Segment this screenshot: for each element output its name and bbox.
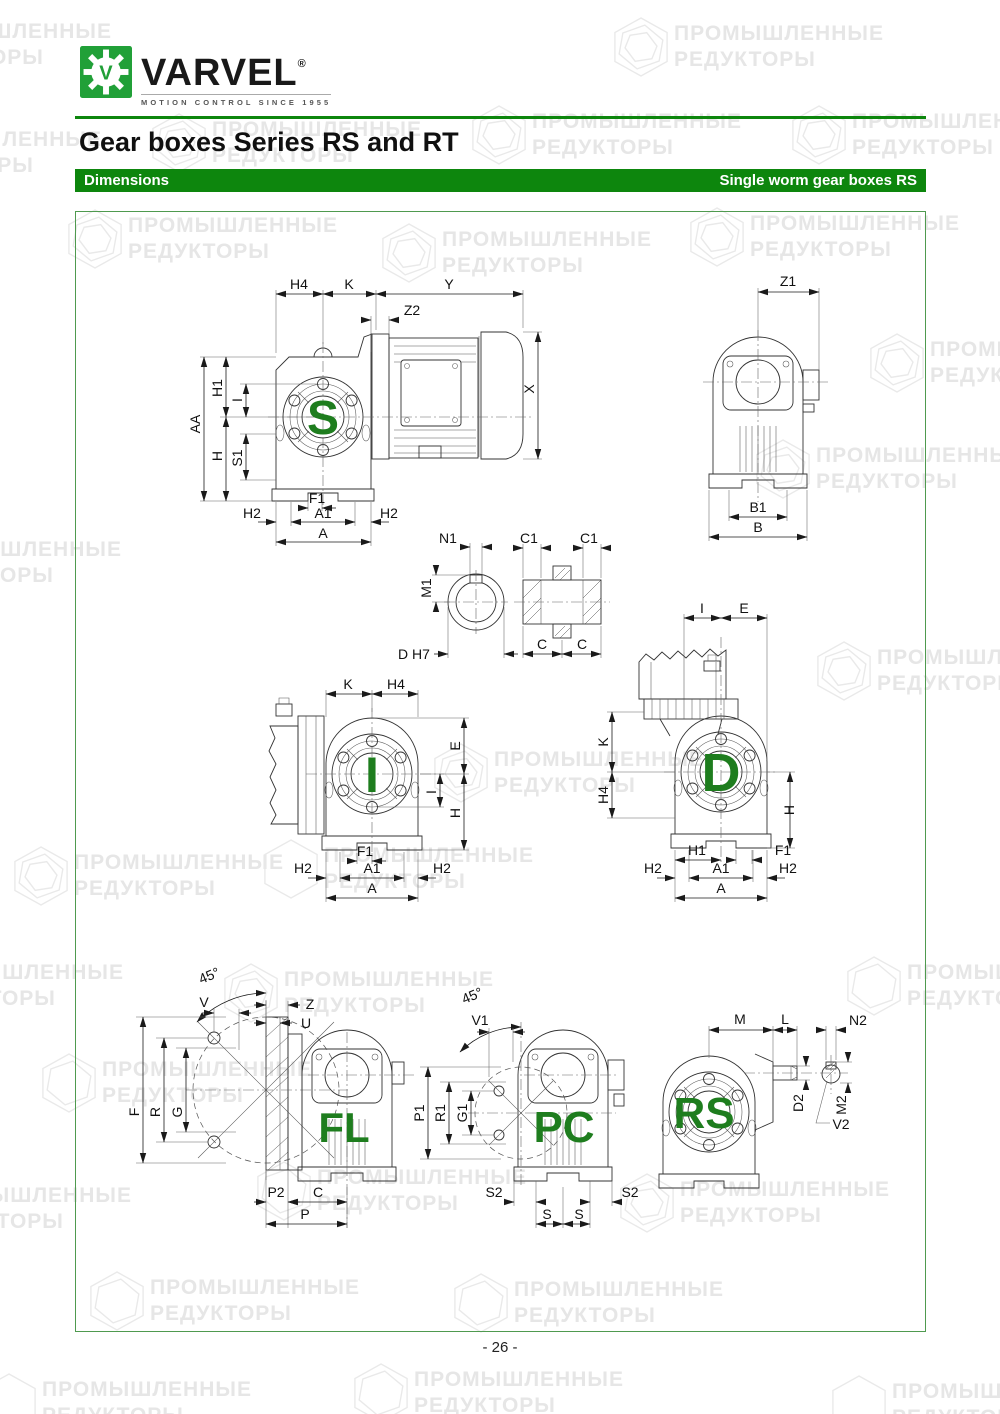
dim-label-rs-v2: V2: [832, 1116, 849, 1132]
dim-label-fl-c: C: [313, 1184, 323, 1200]
dim-label-s-y: Y: [444, 276, 454, 292]
s-motor-drawing: [372, 332, 523, 459]
watermark: ПРОМЫШЛЕННЫЕРЕДУКТОРЫ: [352, 1362, 624, 1414]
dim-label-s-s1: S1: [229, 449, 245, 466]
dim-label-rs-m: M: [734, 1011, 746, 1027]
dim-label-d-i: I: [700, 600, 704, 616]
dim-label-i-h2l: H2: [294, 860, 312, 876]
shaft-hollow-section: [514, 566, 610, 638]
dim-label-fl-45: 45°: [196, 964, 222, 987]
watermark-text: ПРОМЫШЛЕННЫЕРЕДУКТОРЫ: [892, 1379, 1000, 1414]
watermark: ПРОМЫШЛЕННЫЕРЕДУКТОРЫ: [612, 16, 884, 78]
dim-label-shaft-c1r: C1: [580, 530, 598, 546]
dim-label-s-x: X: [521, 384, 537, 394]
watermark: ПРОМЫШЛЕННЫЕРЕДУКТОРЫ: [830, 1374, 1000, 1414]
brand-name: VARVEL®: [141, 46, 331, 91]
dim-label-i-a1: A1: [363, 860, 380, 876]
dim-label-i-h4: H4: [387, 676, 405, 692]
figure-fl-view: 45° V Z U F R G P2 C P FL: [126, 964, 416, 1228]
section-bar-right: Single worm gear boxes RS: [719, 172, 917, 189]
hexagon-watermark-icon: [790, 104, 848, 166]
dim-label-d-a: A: [716, 880, 726, 896]
dim-label-i-e: E: [447, 741, 463, 750]
watermark-text: ПРОМЫШЛЕННЫЕРЕДУКТОРЫ: [930, 337, 1000, 389]
version-letter-d: D: [702, 743, 741, 803]
i-motor-drawing: [269, 698, 324, 834]
dim-label-shaft-m1: M1: [418, 578, 434, 598]
watermark-text: ПРОМЫШЛЕННЫЕРЕДУКТОРЫ: [42, 1377, 252, 1414]
dim-label-s-a1: A1: [314, 505, 331, 521]
dim-label-s-z2: Z2: [404, 302, 421, 318]
fl-flange-drawing: [186, 1000, 348, 1180]
dim-label-s-k: K: [344, 276, 354, 292]
section-bar: Dimensions Single worm gear boxes RS: [75, 169, 926, 192]
figure-rs-view: M L N2 D2 M2 V2 RS: [659, 1011, 867, 1188]
hexagon-watermark-icon: [12, 845, 70, 907]
dim-label-shaft-dh7: D H7: [398, 646, 430, 662]
dim-label-s-i: I: [229, 398, 245, 402]
watermark: ПРОМЫШЛЕННЫЕРЕДУКТОРЫ: [0, 1372, 252, 1414]
varvel-logo: V VARVEL® MOTION CONTROL SINCE 1955: [80, 46, 331, 107]
figure-d-view: I E K H4 H H1 F1 H2 A1 H2 A D: [595, 600, 797, 902]
figure-i-view: K H4 E I H F1 H2 A1 H2 A I: [269, 676, 469, 902]
dim-label-fl-f: F: [126, 1108, 142, 1117]
dim-label-pc-g1: G1: [454, 1103, 470, 1122]
dim-label-i-h: H: [447, 808, 463, 818]
dim-label-pc-sr: S: [574, 1206, 583, 1222]
dim-label-rs-m2: M2: [833, 1095, 849, 1115]
dim-label-pc-s2r: S2: [621, 1184, 638, 1200]
watermark: ПРОМЫШЛЕННЫЕРЕДУКТОРЫ: [790, 104, 1000, 166]
dim-label-fl-g: G: [169, 1107, 185, 1118]
brand-tagline: MOTION CONTROL SINCE 1955: [141, 94, 331, 107]
catalog-page: ПРОМЫШЛЕННЫЕРЕДУКТОРЫ ПРОМЫШЛЕННЫЕРЕДУКТ…: [0, 0, 1000, 1414]
green-rule: [75, 116, 926, 119]
dim-label-d-h2r: H2: [779, 860, 797, 876]
section-bar-left: Dimensions: [84, 172, 169, 189]
rs-key-section-drawing: [822, 1055, 840, 1094]
dim-label-s-h4: H4: [290, 276, 308, 292]
shaft-bore-section: [444, 570, 508, 634]
gear-logo-icon: V: [80, 46, 132, 98]
drawings-frame: H4 K Y Z2 X H1 I AA H S1 F1 H2 A1 H2 A S: [75, 211, 926, 1332]
dim-label-pc-v1: V1: [471, 1012, 488, 1028]
figure-shaft-details: N1 M1 D H7 C1 C1 C C: [398, 530, 611, 662]
dim-label-pc-s2l: S2: [485, 1184, 502, 1200]
dim-label-rear-b1: B1: [749, 499, 766, 515]
dim-label-s-h2l: H2: [243, 505, 261, 521]
watermark-text: ПРОМЫШЛЕННЫЕРЕДУКТОРЫ: [674, 21, 884, 73]
page-title: Gear boxes Series RS and RT: [79, 127, 459, 158]
dim-label-rs-l: L: [781, 1011, 789, 1027]
watermark: ПРОМЫШЛЕННЫЕРЕДУКТОРЫ: [470, 104, 742, 166]
dim-label-d-h2l: H2: [644, 860, 662, 876]
dim-label-d-f1: F1: [775, 842, 792, 858]
dim-label-s-aa: AA: [187, 414, 203, 433]
dim-label-d-a1: A1: [712, 860, 729, 876]
dim-label-d-h1: H1: [688, 842, 706, 858]
version-letter-i: I: [365, 747, 379, 803]
dim-label-s-h1: H1: [209, 379, 225, 397]
figure-pc-view: 45° V1 P1 R1 G1 S2 S2 S S PC: [411, 984, 639, 1228]
dim-label-fl-z: Z: [306, 996, 315, 1012]
dim-label-i-a: A: [367, 880, 377, 896]
dim-label-pc-45: 45°: [459, 984, 485, 1007]
dim-label-pc-r1: R1: [432, 1104, 448, 1122]
hexagon-watermark-icon: [470, 104, 528, 166]
version-letter-s: S: [307, 392, 339, 445]
version-letter-fl: FL: [318, 1104, 369, 1151]
figure-rear-view: Z1 B1 B: [703, 273, 828, 541]
hexagon-watermark-icon: [352, 1362, 410, 1414]
dim-label-pc-sl: S: [542, 1206, 551, 1222]
dim-label-i-h2r: H2: [433, 860, 451, 876]
dim-label-shaft-n1: N1: [439, 530, 457, 546]
dim-label-s-h: H: [209, 451, 225, 461]
dim-label-fl-p: P: [300, 1206, 309, 1222]
dim-label-rear-z1: Z1: [780, 273, 797, 289]
dim-label-i-i: I: [423, 790, 439, 794]
figure-s-view: H4 K Y Z2 X H1 I AA H S1 F1 H2 A1 H2 A S: [187, 276, 542, 546]
dim-label-fl-v: V: [199, 994, 209, 1010]
page-number: - 26 -: [0, 1339, 1000, 1356]
version-letter-pc: PC: [533, 1103, 594, 1152]
version-letter-rs: RS: [673, 1089, 734, 1138]
dim-label-rs-d2: D2: [790, 1094, 806, 1112]
technical-drawings: H4 K Y Z2 X H1 I AA H S1 F1 H2 A1 H2 A S: [76, 212, 925, 1331]
dim-label-i-f1: F1: [357, 843, 374, 859]
watermark-text: ПРОМЫШЛЕННЫЕРЕДУКТОРЫ: [414, 1367, 624, 1414]
dim-label-d-e: E: [739, 600, 748, 616]
hexagon-watermark-icon: [612, 16, 670, 78]
dim-label-i-k: K: [343, 676, 353, 692]
registered-mark: ®: [298, 58, 307, 70]
dim-label-shaft-cl: C: [537, 636, 547, 652]
dim-label-pc-p1: P1: [411, 1104, 427, 1121]
dim-label-shaft-c1l: C1: [520, 530, 538, 546]
dim-label-rear-b: B: [753, 519, 762, 535]
dim-label-fl-r: R: [147, 1107, 163, 1117]
svg-text:V: V: [99, 63, 113, 85]
dim-label-s-a: A: [318, 525, 328, 541]
d-motor-drawing: [639, 649, 738, 736]
dim-label-s-f1: F1: [309, 490, 326, 506]
dim-label-d-h: H: [781, 805, 797, 815]
dim-label-d-k: K: [595, 737, 611, 747]
dim-label-s-h2r: H2: [380, 505, 398, 521]
hexagon-watermark-icon: [830, 1374, 888, 1414]
dim-label-rs-n2: N2: [849, 1012, 867, 1028]
hexagon-watermark-icon: [0, 1372, 38, 1414]
dim-label-d-h4: H4: [595, 786, 611, 804]
dim-label-fl-p2: P2: [267, 1184, 284, 1200]
dim-label-fl-u: U: [301, 1015, 311, 1031]
dim-label-shaft-cr: C: [577, 636, 587, 652]
